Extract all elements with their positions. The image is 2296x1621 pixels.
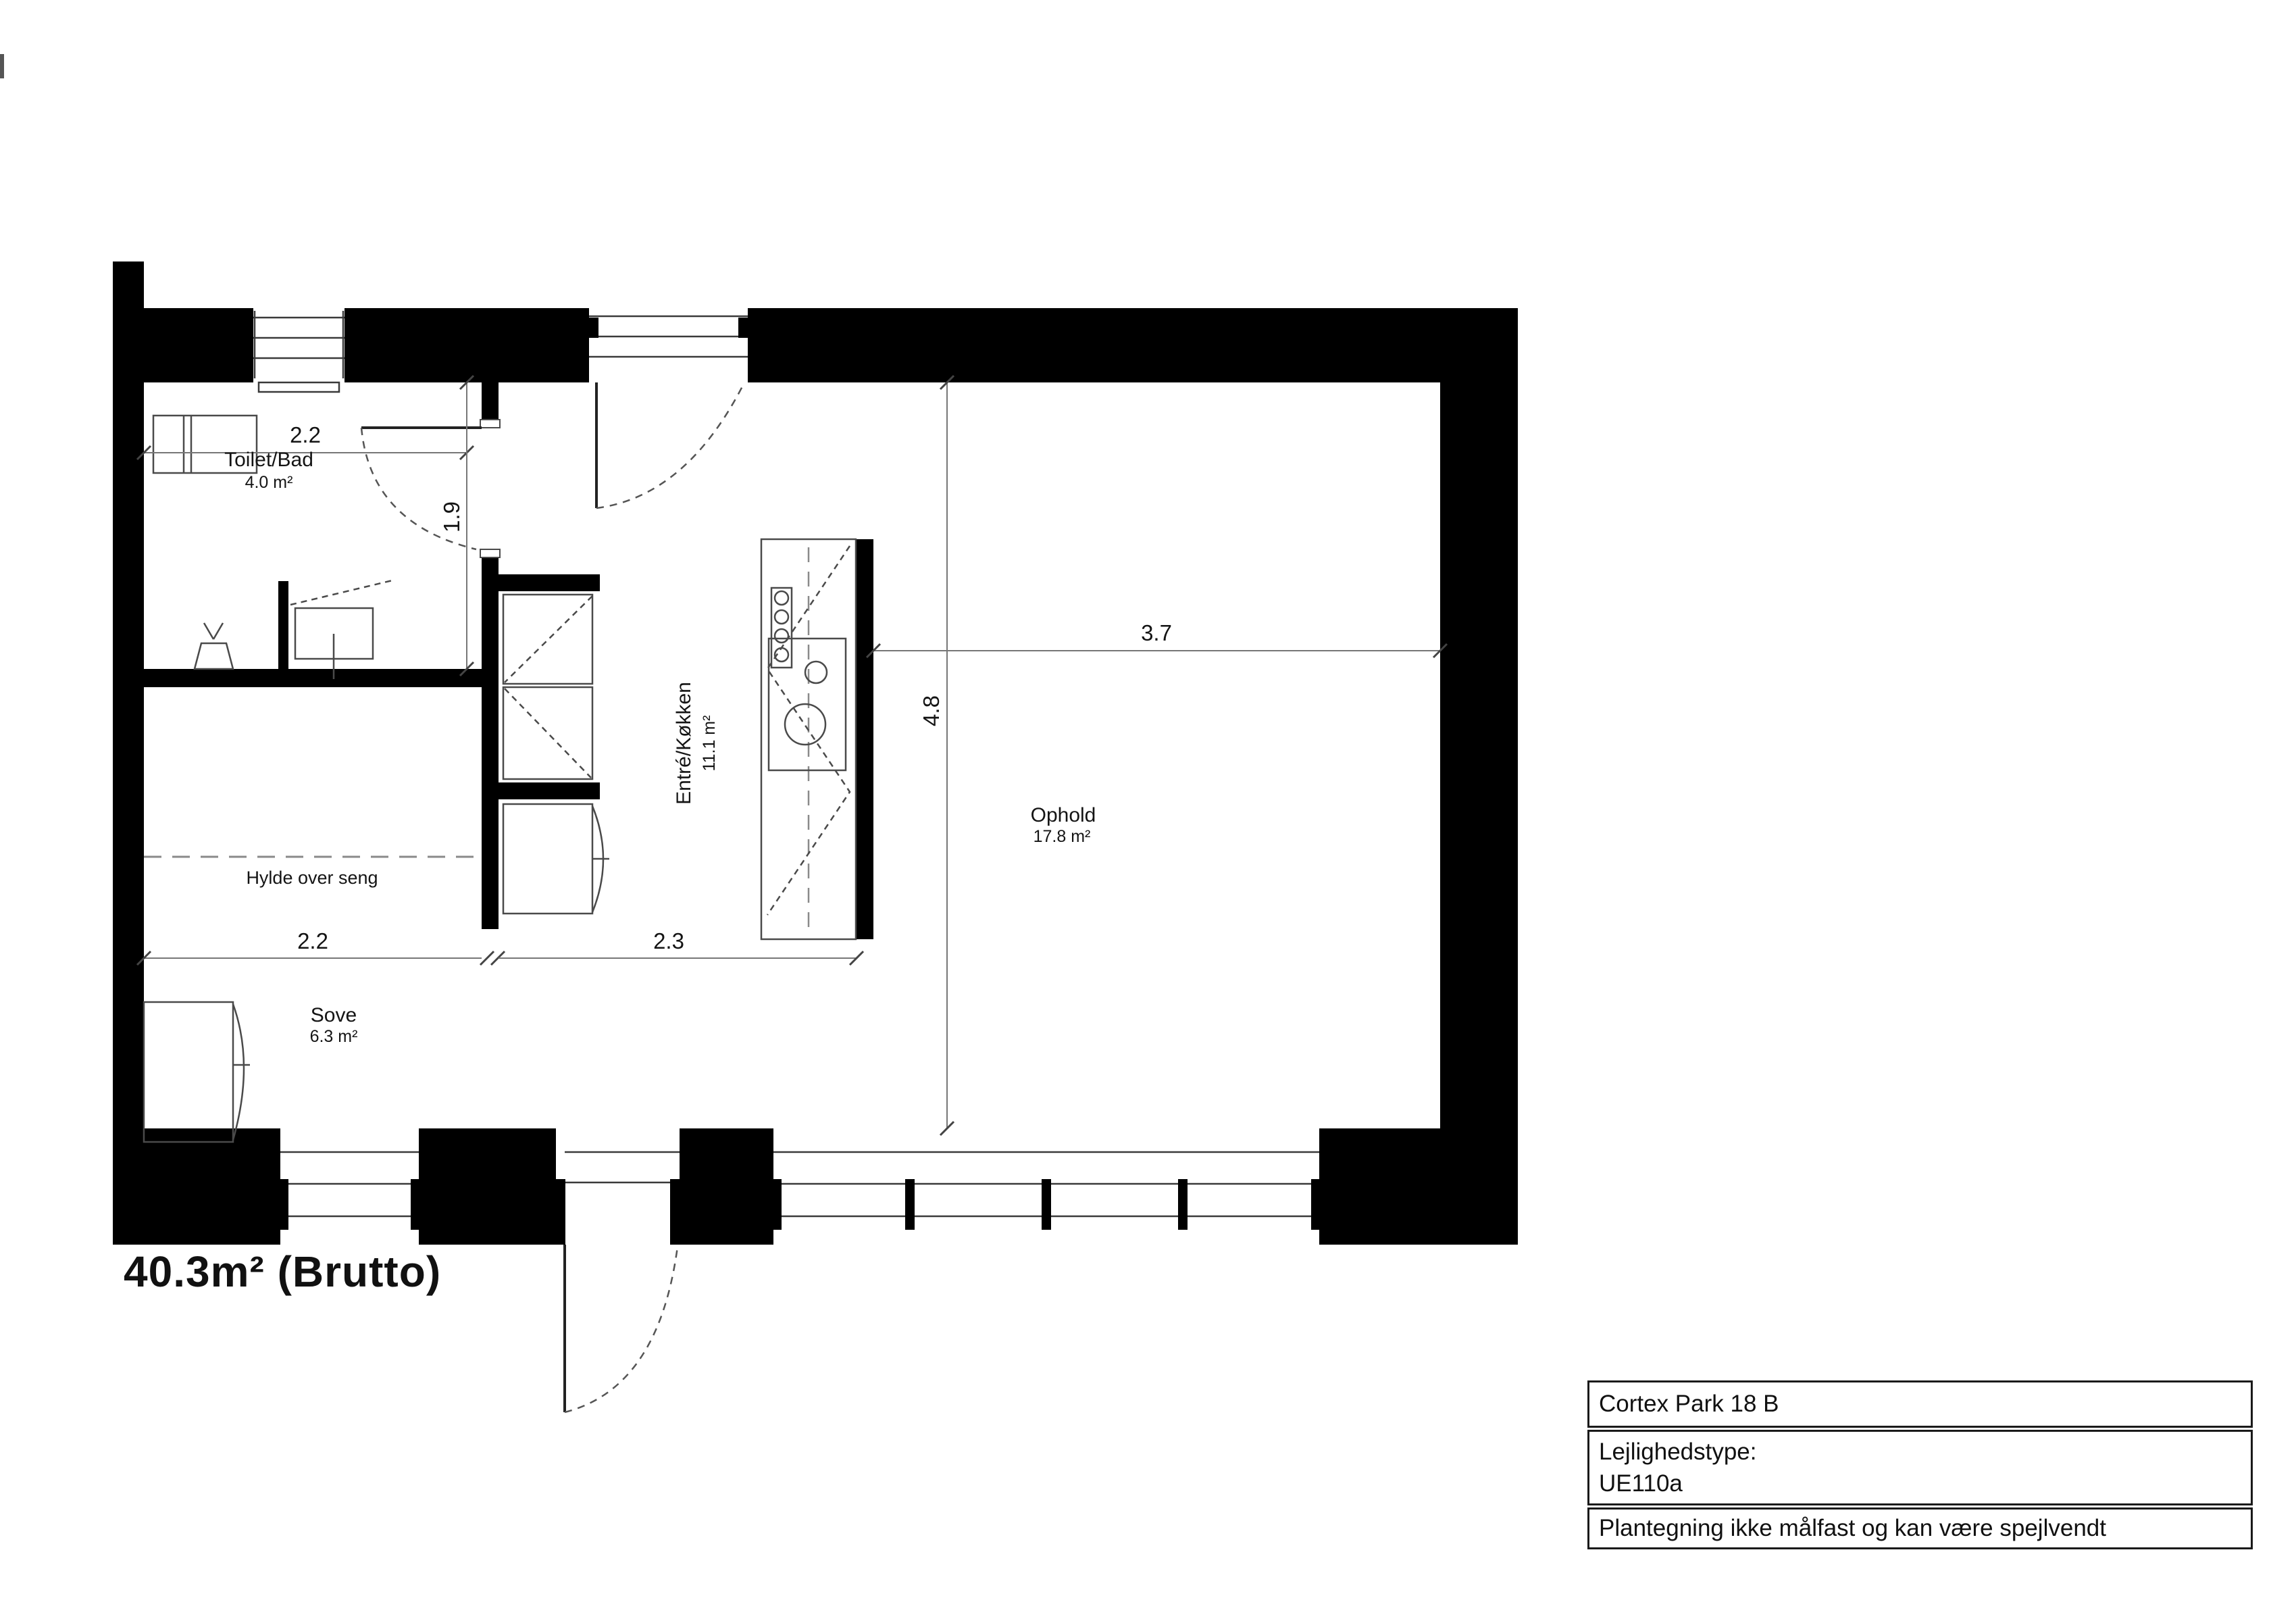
- wall-left: [113, 261, 144, 1245]
- toilet-wall-vertical: [482, 557, 499, 929]
- toilet-wc: [295, 608, 373, 679]
- kitchen-counter: [761, 539, 856, 939]
- type-label-text: Lejlighedstype:: [1599, 1436, 2251, 1468]
- balcony-door-swing-arc: [565, 1247, 678, 1412]
- wall-right: [1440, 308, 1518, 1245]
- dim-label-entre-width: 2.3: [653, 928, 684, 953]
- dim-label-sove-width: 2.2: [297, 928, 328, 953]
- wall-bottom-seg-4: [1319, 1128, 1518, 1245]
- toilet-area: 4.0 m²: [245, 473, 293, 492]
- room-label-sove: Sove 6.3 m²: [310, 1004, 358, 1046]
- wall-top-seg-1: [144, 308, 253, 382]
- floor-plan-page: Hylde over seng: [0, 0, 2296, 1621]
- hand-basin: [195, 623, 233, 669]
- title-block-disclaimer: Plantegning ikke målfast og kan være spe…: [1587, 1507, 2253, 1549]
- dim-apartment-depth: [940, 376, 954, 1135]
- dim-label-toilet-width: 2.2: [290, 422, 321, 447]
- title-block-type: Lejlighedstype: UE110a: [1587, 1430, 2253, 1505]
- entre-closet-1: [503, 595, 592, 684]
- title-block: Cortex Park 18 B Lejlighedstype: UE110a …: [1587, 1380, 2253, 1549]
- room-label-toilet: Toilet/Bad 4.0 m²: [224, 449, 313, 492]
- toilet-wall-bottom: [144, 669, 482, 687]
- window-sove: [280, 1152, 419, 1230]
- dim-label-living-width: 3.7: [1141, 620, 1172, 645]
- floor-plan-drawing: Hylde over seng: [0, 0, 2296, 1621]
- exterior-walls: [113, 261, 1518, 1245]
- wall-bottom-seg-1: [113, 1128, 280, 1245]
- window-toilet: [253, 311, 345, 392]
- wall-bottom-seg-3: [680, 1128, 773, 1245]
- entre-name: Entré/Køkken: [673, 682, 695, 805]
- gross-area-label: 40.3m² (Brutto): [124, 1247, 441, 1297]
- shelf-over-bed: Hylde over seng: [144, 857, 482, 888]
- entre-closet-2: [503, 687, 592, 779]
- balcony-door: [556, 1152, 680, 1412]
- ophold-area: 17.8 m²: [1034, 827, 1091, 846]
- ophold-name: Ophold: [1031, 804, 1096, 826]
- entre-closet-3: [503, 804, 609, 914]
- disclaimer-text: Plantegning ikke målfast og kan være spe…: [1599, 1512, 2251, 1544]
- toilet-wall-jamb-top: [482, 382, 499, 420]
- room-label-entre: Entré/Køkken 11.1 m²: [673, 682, 719, 805]
- room-labels: Toilet/Bad 4.0 m² Entré/Køkken 11.1 m² O…: [224, 449, 1096, 1046]
- room-label-ophold: Ophold 17.8 m²: [1031, 804, 1096, 846]
- shelf-note-label: Hylde over seng: [246, 868, 378, 888]
- sove-name: Sove: [311, 1004, 357, 1026]
- entrance-door-swing-arc: [596, 385, 743, 508]
- entre-area: 11.1 m²: [700, 716, 719, 772]
- kitchen-sink-large-bowl: [785, 704, 825, 745]
- dim-sove-width: [137, 951, 505, 965]
- wall-bottom-seg-2: [419, 1128, 556, 1245]
- shower-partition: [278, 581, 288, 687]
- shower-curtain-line: [290, 580, 395, 605]
- entre-stub-wall-2: [499, 782, 600, 799]
- jamb-cap-bottom: [480, 549, 500, 557]
- dim-label-toilet-depth: 1.9: [439, 501, 464, 532]
- toilet-name: Toilet/Bad: [224, 449, 313, 471]
- sove-wardrobe: [144, 1002, 250, 1142]
- dim-label-apartment-depth: 4.8: [919, 695, 944, 726]
- dim-living-width: [867, 644, 1447, 657]
- wall-top-seg-2: [345, 308, 589, 382]
- title-block-address: Cortex Park 18 B: [1587, 1380, 2253, 1428]
- window-living: [773, 1152, 1319, 1230]
- wall-top-seg-3: [748, 308, 1518, 382]
- entrance-door: [589, 316, 748, 508]
- entre-stub-wall-1: [499, 574, 600, 591]
- dim-entre-width: [499, 951, 863, 965]
- fixtures: [144, 416, 856, 1142]
- sove-area: 6.3 m²: [310, 1027, 358, 1046]
- address-text: Cortex Park 18 B: [1599, 1388, 2251, 1420]
- dimension-labels: 2.2 1.9 3.7 4.8 2.2 2.3: [290, 422, 1172, 953]
- kitchen-wall: [857, 539, 873, 939]
- type-value-text: UE110a: [1599, 1468, 2251, 1499]
- jamb-cap-top: [480, 420, 500, 428]
